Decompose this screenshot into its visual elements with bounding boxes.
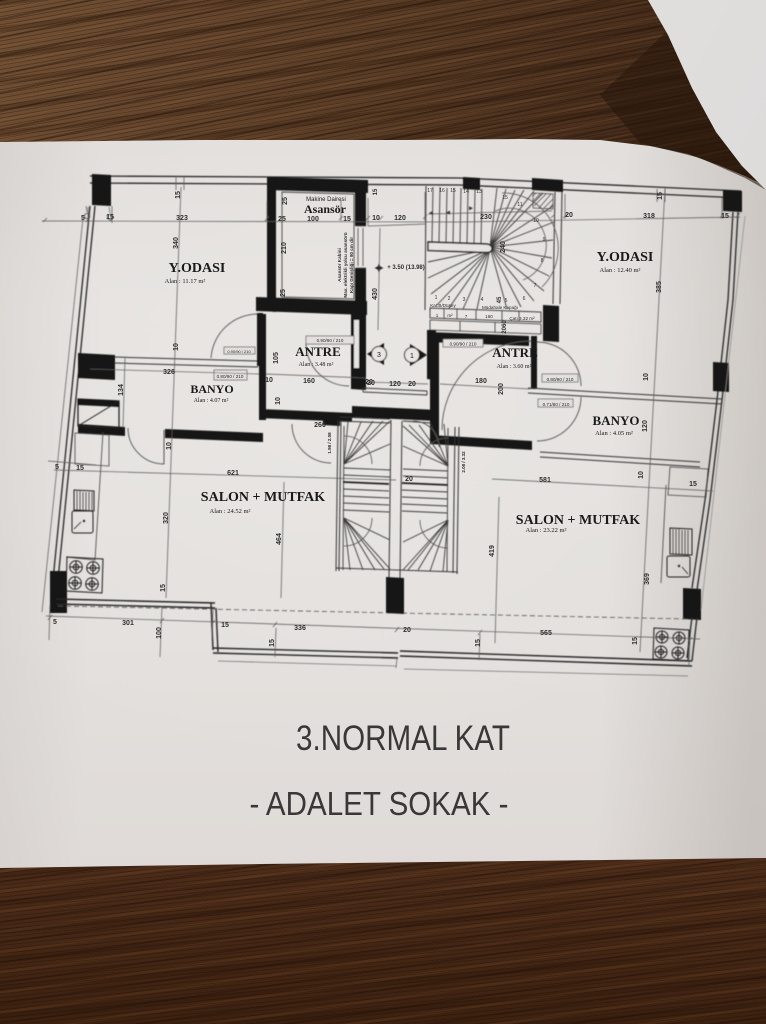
svg-text:25: 25: [280, 289, 287, 297]
svg-text:15: 15: [175, 191, 182, 199]
svg-text:20: 20: [367, 380, 375, 387]
svg-text:15: 15: [106, 214, 114, 221]
svg-text:+ 3.50 (13.98): + 3.50 (13.98): [387, 265, 425, 271]
svg-text:2060: 2060: [502, 320, 508, 334]
svg-text:25: 25: [278, 216, 286, 223]
svg-text:10: 10: [372, 215, 380, 222]
svg-text:120: 120: [389, 381, 401, 388]
svg-text:0.90/90 / 210: 0.90/90 / 210: [317, 338, 344, 343]
svg-text:320: 320: [163, 512, 170, 524]
svg-text:Alan : 4.07 m²: Alan : 4.07 m²: [194, 398, 229, 404]
svg-text:10: 10: [173, 343, 180, 351]
svg-text:14: 14: [463, 189, 469, 195]
svg-text:13: 13: [476, 189, 482, 195]
svg-text:20: 20: [405, 476, 413, 483]
svg-text:15: 15: [502, 195, 508, 201]
svg-text:15: 15: [160, 584, 167, 592]
svg-text:Çatı 3.32 m²: Çatı 3.32 m²: [509, 316, 535, 321]
svg-text:16: 16: [439, 188, 445, 194]
svg-text:1: 1: [410, 353, 414, 360]
svg-text:210: 210: [281, 242, 288, 254]
svg-text:20: 20: [408, 381, 416, 388]
svg-text:Müdahale Kapağı: Müdahale Kapağı: [482, 305, 518, 310]
svg-text:Asansör Kabini: Asansör Kabini: [337, 248, 342, 282]
svg-text:15: 15: [269, 639, 276, 647]
svg-text:336: 336: [294, 625, 306, 632]
svg-text:6: 6: [523, 296, 526, 302]
svg-text:323: 323: [176, 215, 188, 222]
svg-text:15: 15: [475, 639, 482, 647]
svg-text:326: 326: [163, 369, 175, 376]
svg-text:369: 369: [644, 573, 651, 585]
svg-text:160: 160: [303, 378, 315, 385]
svg-text:5: 5: [53, 619, 57, 626]
svg-text:180: 180: [475, 378, 487, 385]
svg-text:ANTRE: ANTRE: [492, 345, 538, 360]
svg-text:134: 134: [118, 384, 125, 396]
svg-text:m²: m²: [447, 313, 453, 318]
svg-text:10: 10: [265, 377, 273, 384]
svg-text:SALON + MUTFAK: SALON + MUTFAK: [201, 490, 325, 505]
svg-text:Kapı Genişliği = 90 cm dir: Kapı Genişliği = 90 cm dir: [349, 237, 354, 293]
svg-text:Alan : 3.60 m²: Alan : 3.60 m²: [497, 364, 532, 370]
svg-text:318: 318: [643, 213, 655, 220]
svg-text:Y.ODASI: Y.ODASI: [169, 261, 226, 276]
svg-text:340: 340: [173, 237, 180, 249]
svg-text:15: 15: [450, 188, 456, 194]
svg-text:1: 1: [436, 313, 439, 318]
svg-text:240: 240: [500, 241, 507, 253]
svg-text:5: 5: [81, 215, 85, 222]
svg-text:15: 15: [657, 192, 664, 200]
svg-text:419: 419: [489, 545, 496, 557]
svg-text:BANYO: BANYO: [190, 382, 233, 396]
svg-text:Kat:B/Düşey: Kat:B/Düşey: [430, 303, 456, 308]
svg-text:Alan : 3.48 m²: Alan : 3.48 m²: [299, 362, 334, 368]
svg-text:15: 15: [343, 216, 351, 223]
svg-text:10: 10: [533, 218, 539, 224]
svg-text:10: 10: [643, 373, 650, 381]
svg-text:BANYO: BANYO: [593, 413, 640, 428]
svg-text:5: 5: [505, 298, 508, 304]
svg-text:4: 4: [481, 297, 484, 303]
svg-text:3: 3: [463, 297, 466, 303]
svg-text:15: 15: [221, 622, 229, 629]
svg-text:10: 10: [166, 442, 173, 450]
svg-text:15: 15: [76, 465, 84, 472]
svg-text:Alan : 12.40 m²: Alan : 12.40 m²: [600, 267, 641, 274]
svg-text:7: 7: [465, 314, 468, 319]
svg-text:ANTRE: ANTRE: [295, 344, 341, 359]
svg-text:100: 100: [307, 216, 319, 223]
svg-text:2.08 / 3.32: 2.08 / 3.32: [461, 451, 466, 473]
svg-text:160: 160: [485, 314, 493, 319]
svg-text:581: 581: [539, 477, 551, 484]
svg-text:7: 7: [534, 283, 537, 289]
svg-text:230: 230: [480, 214, 492, 221]
svg-text:15: 15: [721, 213, 729, 220]
svg-text:430: 430: [372, 288, 379, 300]
svg-text:20: 20: [565, 212, 573, 219]
svg-text:2: 2: [448, 296, 451, 302]
svg-text:25: 25: [282, 197, 289, 205]
svg-text:45: 45: [497, 296, 503, 303]
svg-text:5: 5: [55, 464, 59, 471]
svg-text:0.90/90 / 210: 0.90/90 / 210: [450, 342, 477, 347]
svg-text:200: 200: [498, 383, 505, 395]
svg-text:464: 464: [276, 533, 283, 545]
svg-text:Y.ODASI: Y.ODASI: [597, 250, 654, 265]
svg-text:Alan : 4.05 m²: Alan : 4.05 m²: [595, 430, 633, 437]
svg-text:8: 8: [541, 258, 544, 264]
svg-text:260: 260: [314, 422, 326, 429]
svg-text:Max. elektrikli yolcu asansörü: Max. elektrikli yolcu asansörü: [343, 232, 348, 297]
svg-text:1.98 / 2.08: 1.98 / 2.08: [327, 432, 332, 454]
svg-text:Alan : 23.22 m²: Alan : 23.22 m²: [526, 527, 567, 534]
svg-text:15: 15: [632, 637, 639, 645]
svg-text:385: 385: [656, 281, 663, 293]
svg-text:105: 105: [273, 352, 280, 364]
svg-text:0.90/90 / 210: 0.90/90 / 210: [227, 349, 251, 354]
svg-text:15: 15: [373, 188, 379, 195]
svg-text:11: 11: [517, 202, 522, 208]
svg-text:120: 120: [642, 420, 649, 432]
svg-text:0.71/80 / 210: 0.71/80 / 210: [543, 402, 570, 407]
svg-text:9: 9: [543, 237, 546, 243]
svg-text:20: 20: [403, 627, 411, 634]
svg-text:301: 301: [122, 620, 134, 627]
svg-text:0.80/90 / 210: 0.80/90 / 210: [217, 374, 244, 379]
svg-text:Alan : 24.52 m²: Alan : 24.52 m²: [210, 508, 251, 515]
svg-text:120: 120: [394, 215, 406, 222]
svg-text:10: 10: [638, 471, 645, 479]
svg-text:0.80/90 / 210: 0.80/90 / 210: [547, 377, 574, 382]
svg-text:Alan : 11.17 m²: Alan : 11.17 m²: [165, 278, 206, 285]
svg-text:3: 3: [377, 352, 381, 359]
svg-text:1: 1: [435, 295, 438, 301]
svg-text:3.NORMAL KAT: 3.NORMAL KAT: [296, 719, 510, 758]
svg-text:Asansör: Asansör: [304, 202, 347, 216]
svg-text:17: 17: [427, 188, 433, 194]
svg-text:10: 10: [275, 397, 282, 405]
svg-text:- ADALET SOKAK -: - ADALET SOKAK -: [250, 785, 509, 822]
svg-text:15: 15: [689, 481, 697, 488]
svg-text:621: 621: [227, 470, 239, 477]
svg-text:565: 565: [540, 630, 552, 637]
svg-text:SALON + MUTFAK: SALON + MUTFAK: [516, 513, 640, 528]
svg-text:100: 100: [156, 627, 163, 639]
